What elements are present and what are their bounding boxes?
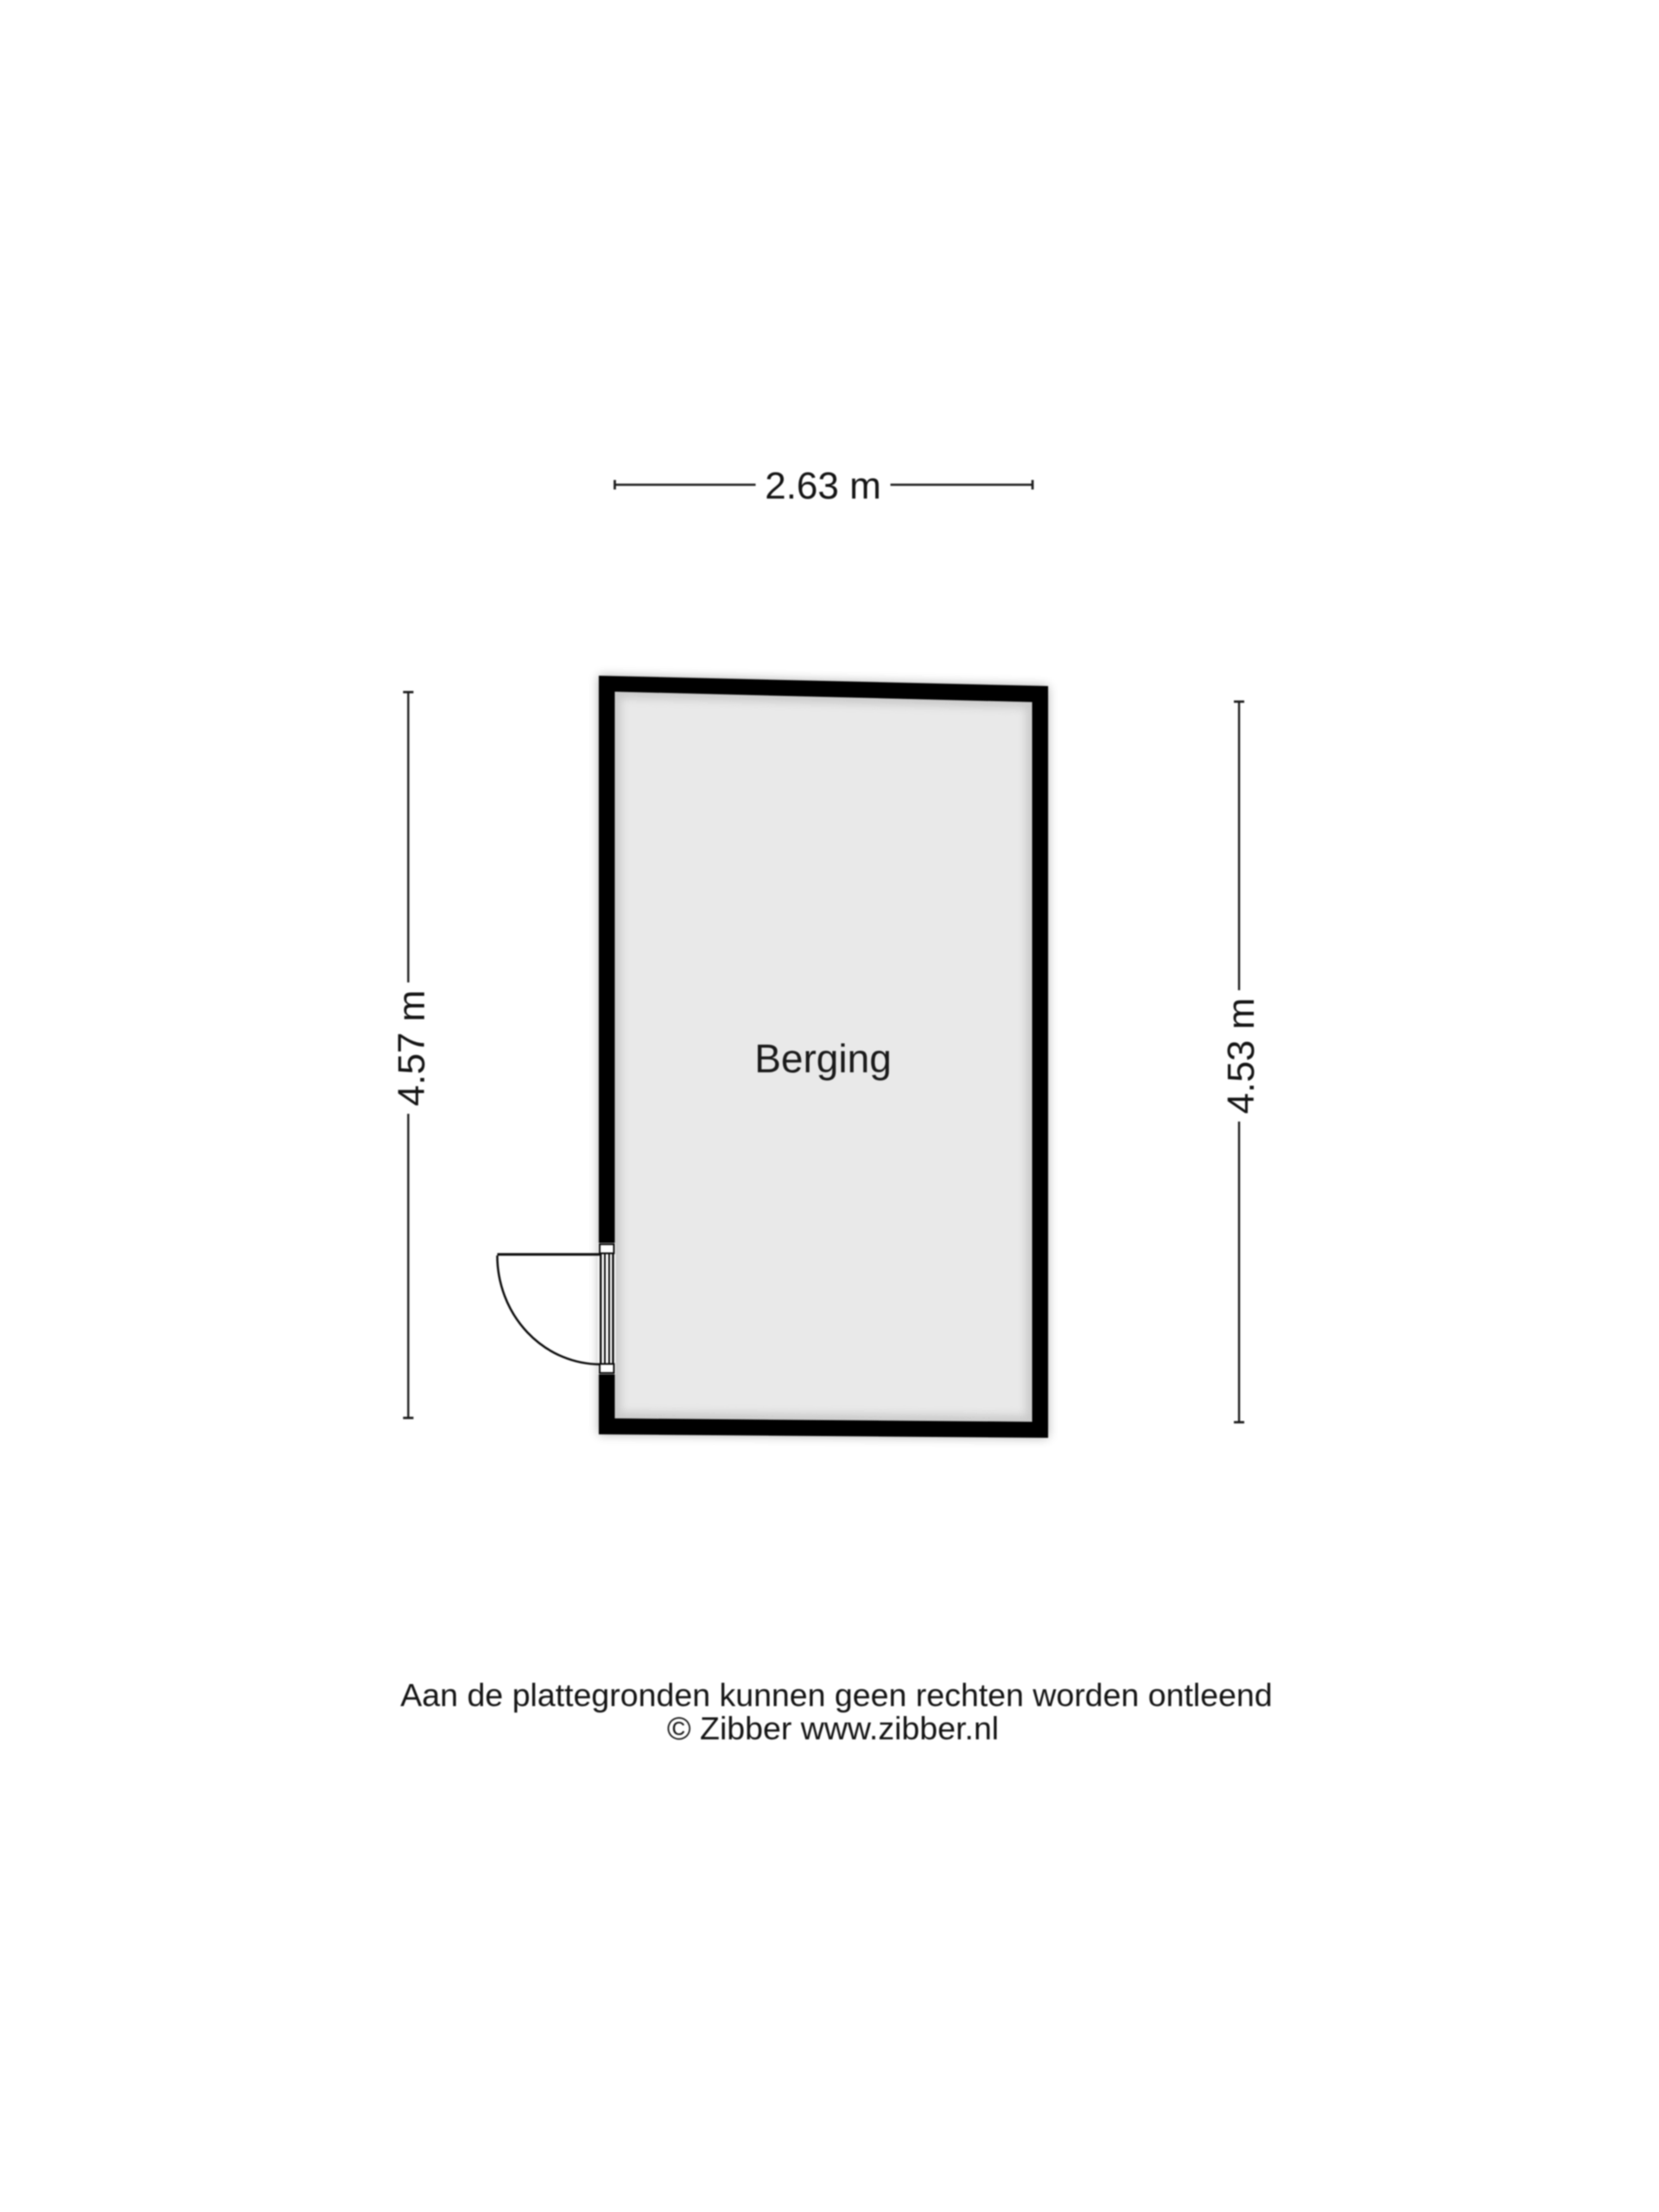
svg-text:4.53 m: 4.53 m <box>1220 998 1262 1115</box>
svg-text:Aan de plattegronden kunnen ge: Aan de plattegronden kunnen geen rechten… <box>400 1677 1272 1713</box>
svg-text:2.63 m: 2.63 m <box>765 465 881 507</box>
svg-text:4.57 m: 4.57 m <box>391 990 433 1107</box>
svg-text:© Zibber www.zibber.nl: © Zibber www.zibber.nl <box>667 1710 999 1746</box>
svg-text:Berging: Berging <box>754 1036 892 1081</box>
